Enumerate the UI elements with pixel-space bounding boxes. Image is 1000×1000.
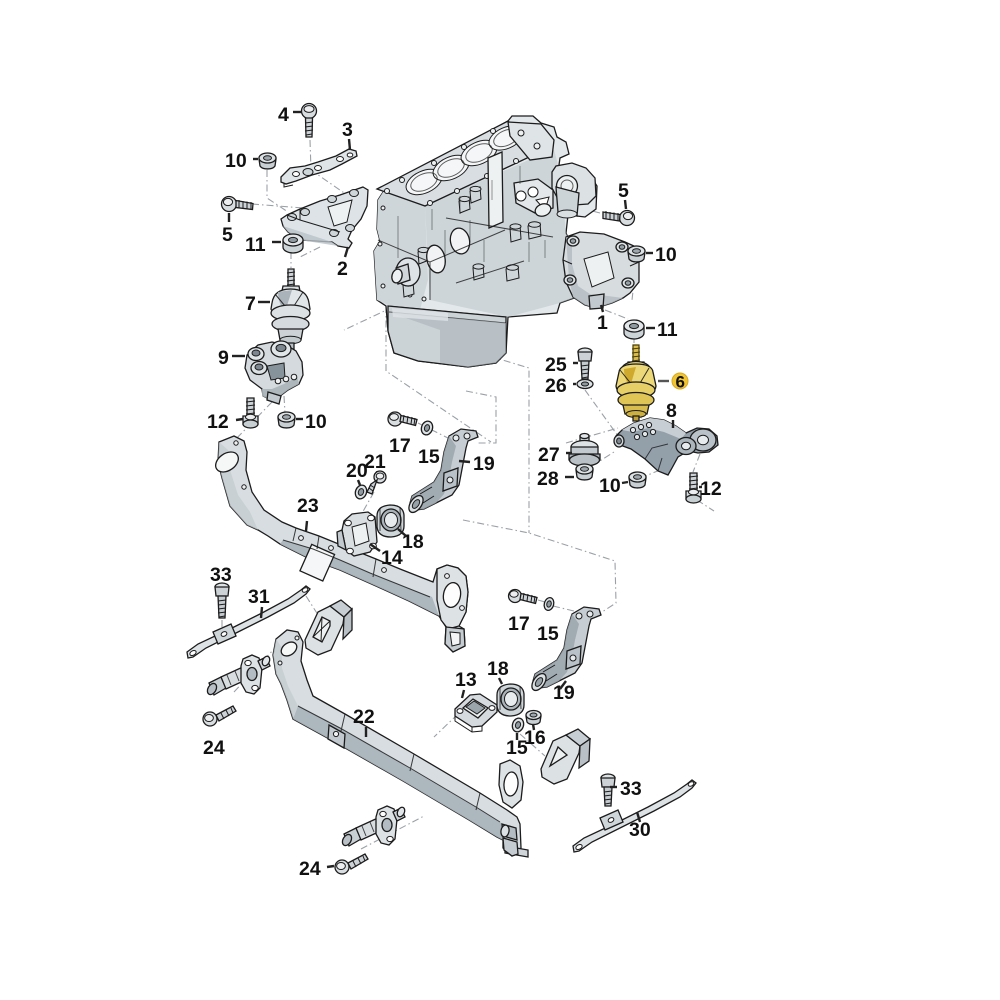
svg-text:10: 10 <box>655 244 677 266</box>
svg-text:4: 4 <box>278 104 289 126</box>
svg-text:31: 31 <box>248 586 270 608</box>
svg-text:13: 13 <box>455 669 477 691</box>
svg-text:18: 18 <box>487 658 509 680</box>
svg-text:12: 12 <box>207 411 229 433</box>
svg-text:17: 17 <box>389 435 411 457</box>
svg-text:7: 7 <box>245 293 256 315</box>
svg-text:10: 10 <box>225 150 247 172</box>
svg-text:30: 30 <box>629 819 651 841</box>
svg-text:2: 2 <box>337 258 348 280</box>
svg-text:17: 17 <box>508 613 530 635</box>
svg-text:24: 24 <box>299 858 321 880</box>
svg-text:33: 33 <box>210 564 232 586</box>
svg-text:16: 16 <box>524 727 546 749</box>
svg-text:12: 12 <box>700 478 722 500</box>
svg-text:27: 27 <box>538 444 560 466</box>
svg-text:5: 5 <box>222 224 233 246</box>
svg-text:19: 19 <box>473 453 495 475</box>
svg-text:5: 5 <box>618 180 629 202</box>
svg-text:15: 15 <box>537 623 559 645</box>
svg-text:10: 10 <box>305 411 327 433</box>
svg-text:33: 33 <box>620 778 642 800</box>
svg-text:6: 6 <box>676 373 685 392</box>
svg-text:1: 1 <box>597 312 608 334</box>
svg-text:20: 20 <box>346 460 368 482</box>
svg-text:9: 9 <box>218 347 229 369</box>
svg-text:28: 28 <box>537 468 559 490</box>
svg-text:11: 11 <box>657 319 678 341</box>
svg-text:23: 23 <box>297 495 319 517</box>
svg-text:15: 15 <box>418 446 440 468</box>
svg-text:24: 24 <box>203 737 225 759</box>
svg-text:11: 11 <box>245 234 266 256</box>
svg-text:26: 26 <box>545 375 567 397</box>
svg-text:14: 14 <box>381 547 403 569</box>
svg-text:25: 25 <box>545 354 567 376</box>
svg-text:22: 22 <box>353 706 375 728</box>
svg-text:8: 8 <box>666 400 677 422</box>
svg-text:10: 10 <box>599 475 621 497</box>
svg-text:3: 3 <box>342 119 353 141</box>
